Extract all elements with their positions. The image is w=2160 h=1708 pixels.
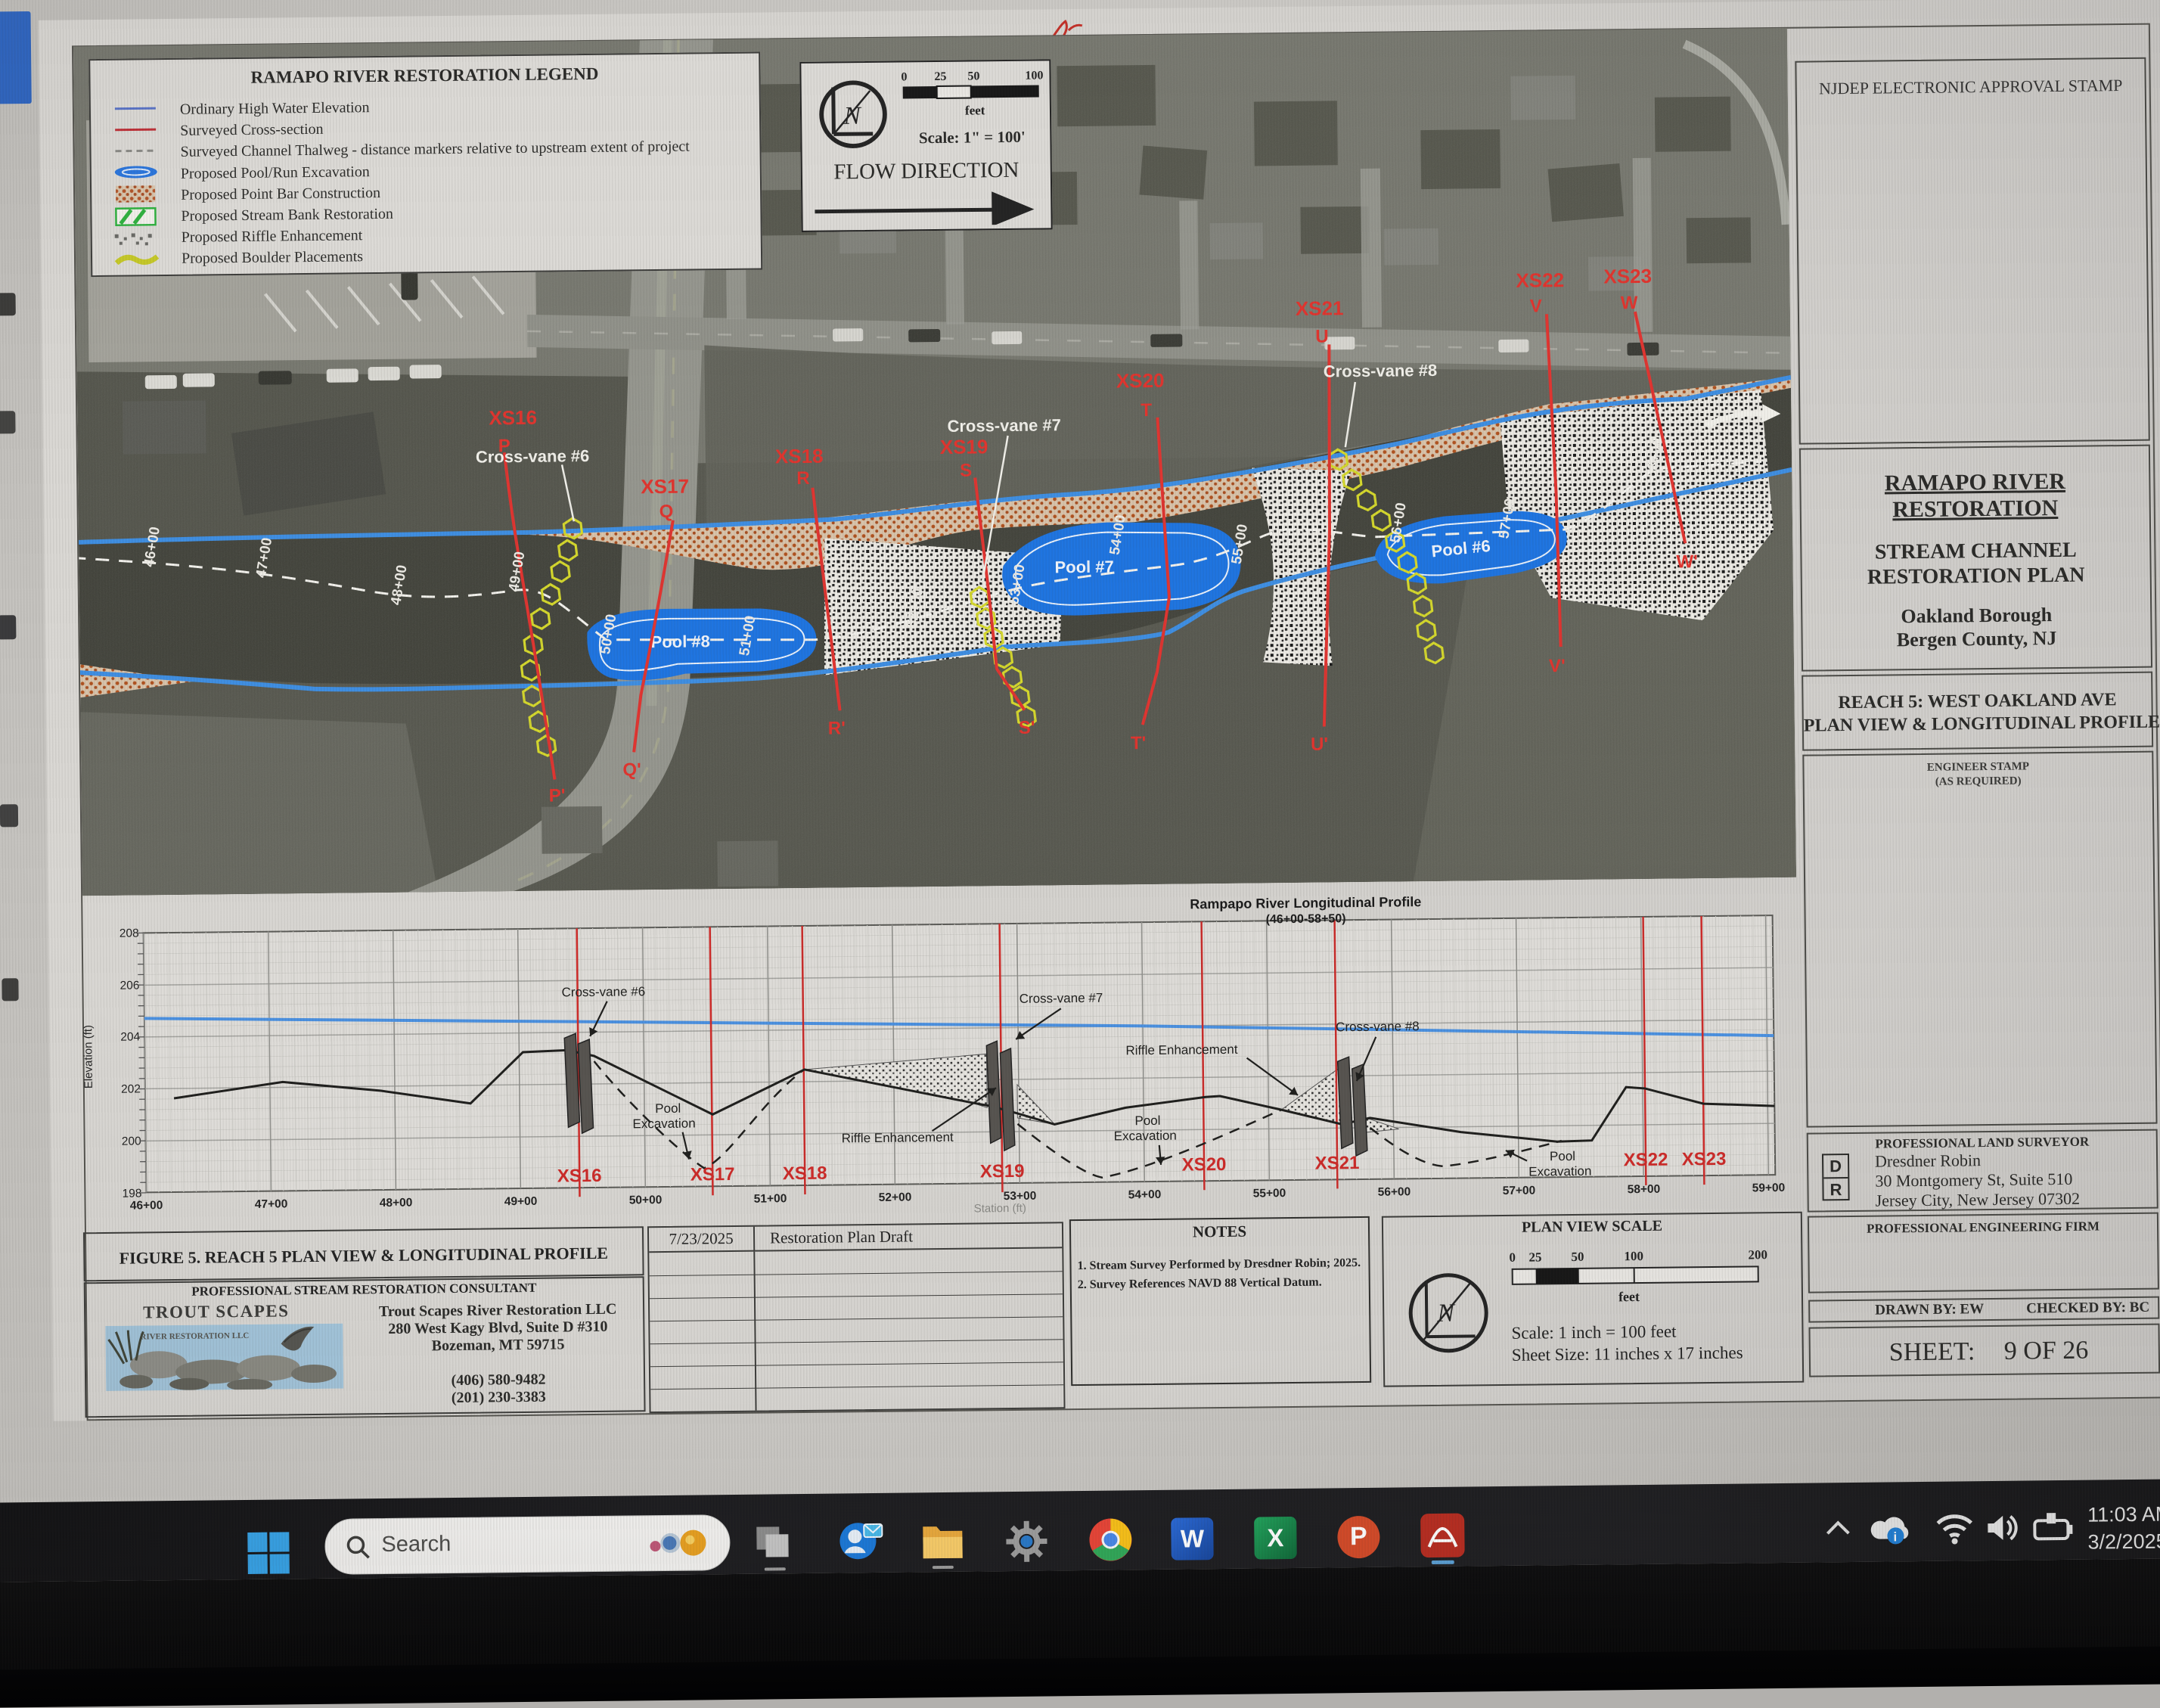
- svg-text:XS16: XS16: [489, 406, 537, 430]
- svg-text:0: 0: [1509, 1250, 1516, 1265]
- svg-text:Excavation: Excavation: [1114, 1129, 1177, 1144]
- svg-text:55+00: 55+00: [1253, 1187, 1286, 1200]
- svg-text:XS19: XS19: [940, 435, 988, 458]
- svg-text:XS16: XS16: [557, 1166, 602, 1187]
- svg-text:Q: Q: [659, 502, 674, 522]
- svg-text:208: 208: [119, 927, 139, 939]
- svg-text:XS22: XS22: [1624, 1150, 1668, 1171]
- svg-text:XS21: XS21: [1315, 1153, 1360, 1174]
- svg-text:56+00: 56+00: [1378, 1185, 1411, 1198]
- svg-text:S': S': [1019, 718, 1035, 738]
- svg-text:Excavation: Excavation: [632, 1116, 695, 1132]
- svg-text:52+00: 52+00: [879, 1191, 912, 1203]
- svg-text:XS23: XS23: [1682, 1149, 1727, 1170]
- svg-text:25: 25: [934, 70, 946, 83]
- svg-text:204: 204: [120, 1030, 140, 1043]
- svg-text:200: 200: [122, 1135, 141, 1147]
- svg-text:(46+00-58+50): (46+00-58+50): [1266, 912, 1346, 926]
- svg-text:U: U: [1315, 326, 1329, 346]
- svg-text:Cross-vane #7: Cross-vane #7: [1019, 991, 1103, 1006]
- svg-text:T: T: [1141, 400, 1152, 421]
- svg-text:XS18: XS18: [783, 1163, 827, 1185]
- svg-text:54+00: 54+00: [1128, 1188, 1162, 1201]
- svg-text:25: 25: [1528, 1250, 1541, 1264]
- svg-text:Riffle Enhancement: Riffle Enhancement: [1125, 1042, 1238, 1058]
- svg-text:T': T': [1131, 733, 1147, 753]
- svg-text:Cross-vane #8: Cross-vane #8: [1324, 361, 1438, 381]
- svg-text:P': P': [549, 785, 566, 806]
- svg-text:50: 50: [1571, 1250, 1584, 1264]
- svg-text:Cross-vane #8: Cross-vane #8: [1336, 1019, 1420, 1034]
- svg-text:Pool: Pool: [1550, 1149, 1575, 1163]
- svg-text:XS21: XS21: [1296, 297, 1344, 320]
- svg-text:XS22: XS22: [1516, 269, 1564, 292]
- svg-text:51+00: 51+00: [754, 1192, 787, 1205]
- svg-text:N: N: [1436, 1300, 1456, 1328]
- svg-text:XS17: XS17: [641, 475, 689, 498]
- svg-text:V': V': [1549, 656, 1566, 676]
- svg-text:Excavation: Excavation: [1528, 1164, 1591, 1179]
- svg-text:Cross-vane #6: Cross-vane #6: [476, 446, 590, 467]
- svg-text:XS20: XS20: [1182, 1154, 1227, 1175]
- svg-text:100: 100: [1025, 69, 1043, 82]
- svg-text:Q': Q': [622, 759, 641, 780]
- svg-text:XS18: XS18: [775, 445, 824, 468]
- svg-text:Pool #8: Pool #8: [650, 632, 710, 651]
- svg-text:50+00: 50+00: [629, 1194, 663, 1206]
- svg-text:feet: feet: [965, 103, 985, 117]
- svg-text:XS20: XS20: [1116, 369, 1165, 393]
- svg-text:N: N: [843, 102, 861, 130]
- svg-text:0: 0: [901, 70, 907, 83]
- svg-text:RIVER RESTORATION LLC: RIVER RESTORATION LLC: [140, 1331, 249, 1342]
- svg-text:206: 206: [119, 979, 139, 992]
- svg-text:Cross-vane #7: Cross-vane #7: [947, 415, 1061, 436]
- svg-text:XS19: XS19: [980, 1161, 1025, 1182]
- svg-text:Pool: Pool: [1134, 1113, 1160, 1128]
- svg-text:Elevation (ft): Elevation (ft): [82, 1025, 95, 1088]
- svg-text:198: 198: [122, 1187, 141, 1200]
- svg-text:S: S: [960, 461, 972, 481]
- svg-text:48+00: 48+00: [380, 1197, 413, 1210]
- svg-text:Cross-vane #6: Cross-vane #6: [561, 984, 645, 999]
- svg-text:feet: feet: [1618, 1289, 1640, 1304]
- svg-text:W': W': [1676, 551, 1698, 572]
- svg-text:XS23: XS23: [1603, 265, 1652, 288]
- svg-text:Pool: Pool: [655, 1101, 681, 1116]
- svg-text:49+00: 49+00: [504, 1195, 538, 1208]
- svg-text:100: 100: [1624, 1249, 1643, 1263]
- svg-text:57+00: 57+00: [1503, 1185, 1536, 1197]
- svg-text:i: i: [1893, 1529, 1897, 1544]
- svg-text:47+00: 47+00: [255, 1197, 288, 1210]
- svg-text:200: 200: [1748, 1247, 1767, 1262]
- svg-text:R': R': [828, 718, 846, 738]
- svg-text:Riffle Enhancement: Riffle Enhancement: [842, 1130, 954, 1146]
- svg-text:W: W: [1621, 293, 1638, 313]
- svg-text:59+00: 59+00: [1752, 1182, 1786, 1194]
- svg-text:53+00: 53+00: [1004, 1190, 1037, 1203]
- svg-text:V: V: [1530, 296, 1542, 316]
- svg-text:Station (ft): Station (ft): [974, 1202, 1026, 1216]
- svg-text:50: 50: [967, 70, 979, 82]
- svg-text:R: R: [796, 468, 810, 489]
- svg-text:202: 202: [121, 1082, 141, 1095]
- svg-text:XS17: XS17: [691, 1164, 735, 1185]
- svg-text:U': U': [1311, 734, 1328, 754]
- svg-text:Rampapo River Longitudinal Pro: Rampapo River Longitudinal Profile: [1190, 894, 1421, 911]
- svg-text:58+00: 58+00: [1628, 1183, 1661, 1196]
- svg-text:46+00: 46+00: [130, 1199, 163, 1212]
